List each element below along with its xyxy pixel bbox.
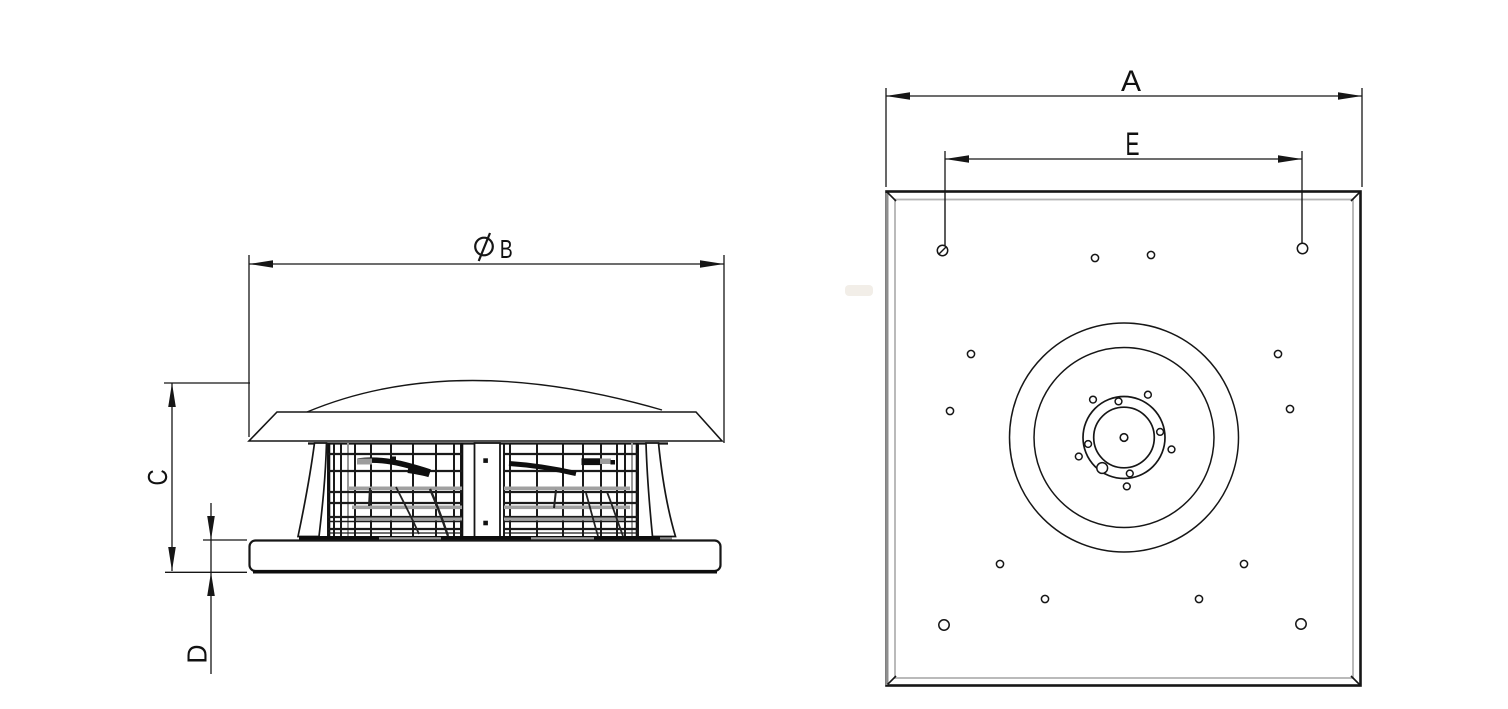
svg-text:E: E — [1125, 125, 1139, 162]
svg-text:A: A — [1121, 65, 1141, 98]
svg-text:C: C — [143, 469, 174, 485]
svg-text:B: B — [500, 234, 513, 263]
svg-text:D: D — [181, 644, 213, 663]
